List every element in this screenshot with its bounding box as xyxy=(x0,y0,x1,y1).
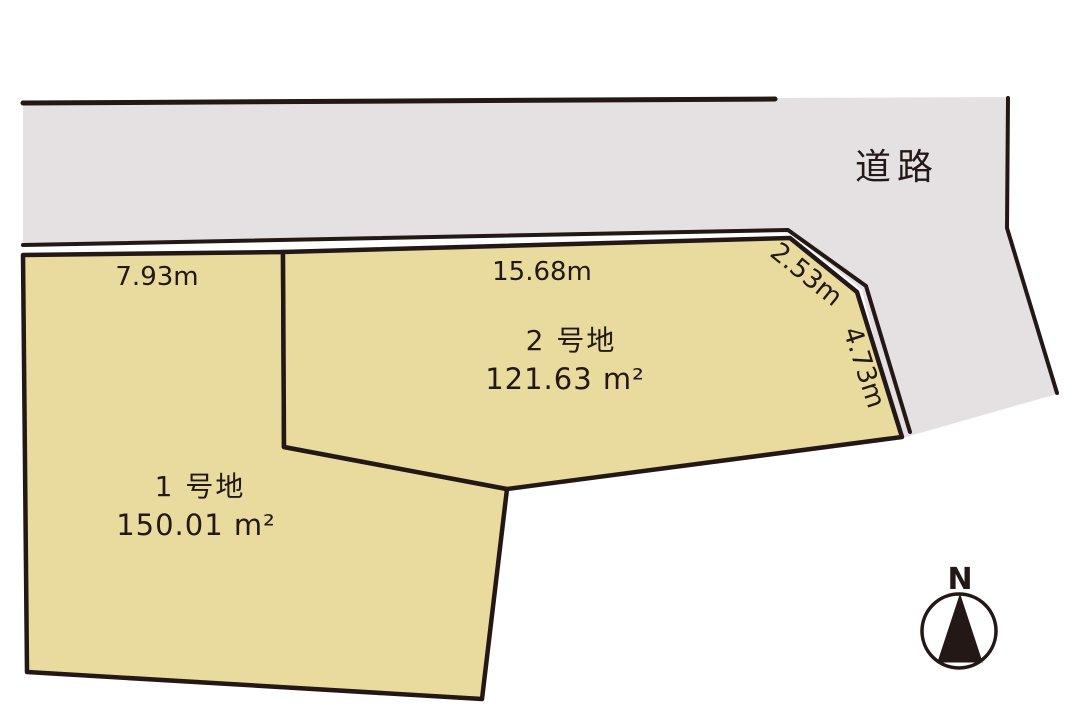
road-label: 道路 xyxy=(855,147,939,188)
plot2-name-label: 2 号地 xyxy=(526,324,617,357)
plot2-area-label: 121.63 m² xyxy=(485,362,645,396)
north-arrow-icon xyxy=(938,595,982,662)
plot1-name-label: 1 号地 xyxy=(155,470,246,503)
plot1-top-dimension-label: 7.93m xyxy=(115,262,198,292)
site-plan-canvas: 道路 7.93m 1 号地 150.01 m² 15.68m 2 号地 121.… xyxy=(0,0,1090,726)
plot2-top-dimension-label: 15.68m xyxy=(492,257,592,287)
site-plan-svg: 道路 7.93m 1 号地 150.01 m² 15.68m 2 号地 121.… xyxy=(0,0,1090,726)
north-compass: N xyxy=(922,562,996,668)
plot1-area-label: 150.01 m² xyxy=(116,508,276,542)
north-label: N xyxy=(947,562,972,597)
